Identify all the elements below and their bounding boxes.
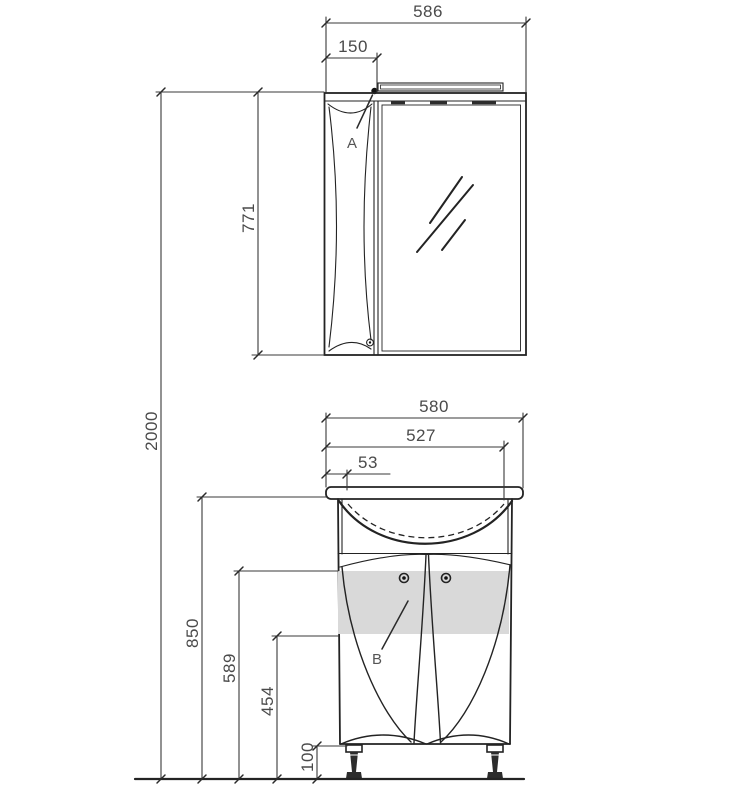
dim-mirror-height: 771: [239, 203, 258, 233]
vanity-leg-left: [346, 745, 362, 779]
dimension-527: 527: [322, 426, 508, 500]
technical-drawing: A: [0, 0, 751, 800]
mirror-hatch-line: [442, 220, 465, 250]
vanity-leg-right: [487, 745, 503, 779]
dim-left-offset: 53: [358, 453, 378, 472]
dimension-drawing-canvas: A: [0, 0, 751, 800]
dimension-2000: 2000: [142, 88, 165, 783]
dim-countertop-width: 580: [419, 397, 449, 416]
dimension-589: 589: [220, 567, 338, 783]
label-b: B: [372, 651, 382, 668]
countertop: [326, 487, 523, 499]
dim-mirror-door-width: 150: [338, 37, 368, 56]
dim-mirror-width: 586: [413, 2, 443, 21]
dim-total-height: 2000: [142, 411, 161, 451]
mirror-cabinet-drawing: A: [325, 83, 527, 355]
dimension-150: 150: [322, 37, 381, 92]
vanity-unit-drawing: B: [326, 487, 523, 779]
dim-door-top-height: 589: [220, 653, 239, 683]
dim-panel-height: 454: [258, 686, 277, 716]
dim-countertop-height: 850: [183, 618, 202, 648]
label-a: A: [347, 135, 357, 152]
mirror-cabinet-frame: [325, 93, 527, 355]
dimension-53: 53: [322, 453, 390, 490]
sink-bowl-hidden-edge: [348, 504, 504, 538]
dimension-771: 771: [156, 88, 324, 359]
sink-bowl: [339, 501, 512, 544]
mirror-glass: [382, 105, 521, 351]
mirror-hatch-line: [417, 185, 473, 252]
dimension-850: 850: [183, 493, 326, 783]
dim-leg-height: 100: [298, 742, 317, 772]
dimension-100: 100: [298, 742, 347, 783]
dim-basin-width: 527: [406, 426, 436, 445]
